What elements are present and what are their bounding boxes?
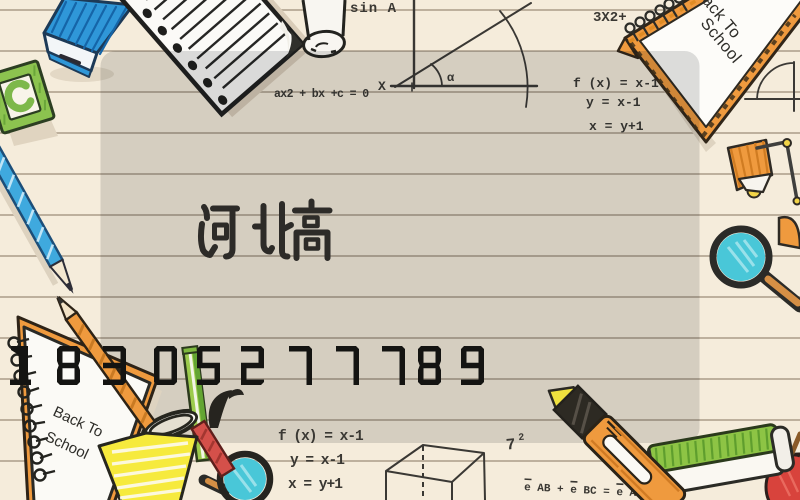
svg-text:2: 2 [518,433,525,445]
svg-text:y = x-1: y = x-1 [290,453,345,469]
svg-text:3X2+: 3X2+ [593,10,627,26]
svg-text:x = y+1: x = y+1 [288,477,343,493]
svg-text:f (x) = x-1: f (x) = x-1 [278,429,364,445]
svg-text:7: 7 [505,436,516,455]
svg-text:sin A: sin A [350,1,397,17]
